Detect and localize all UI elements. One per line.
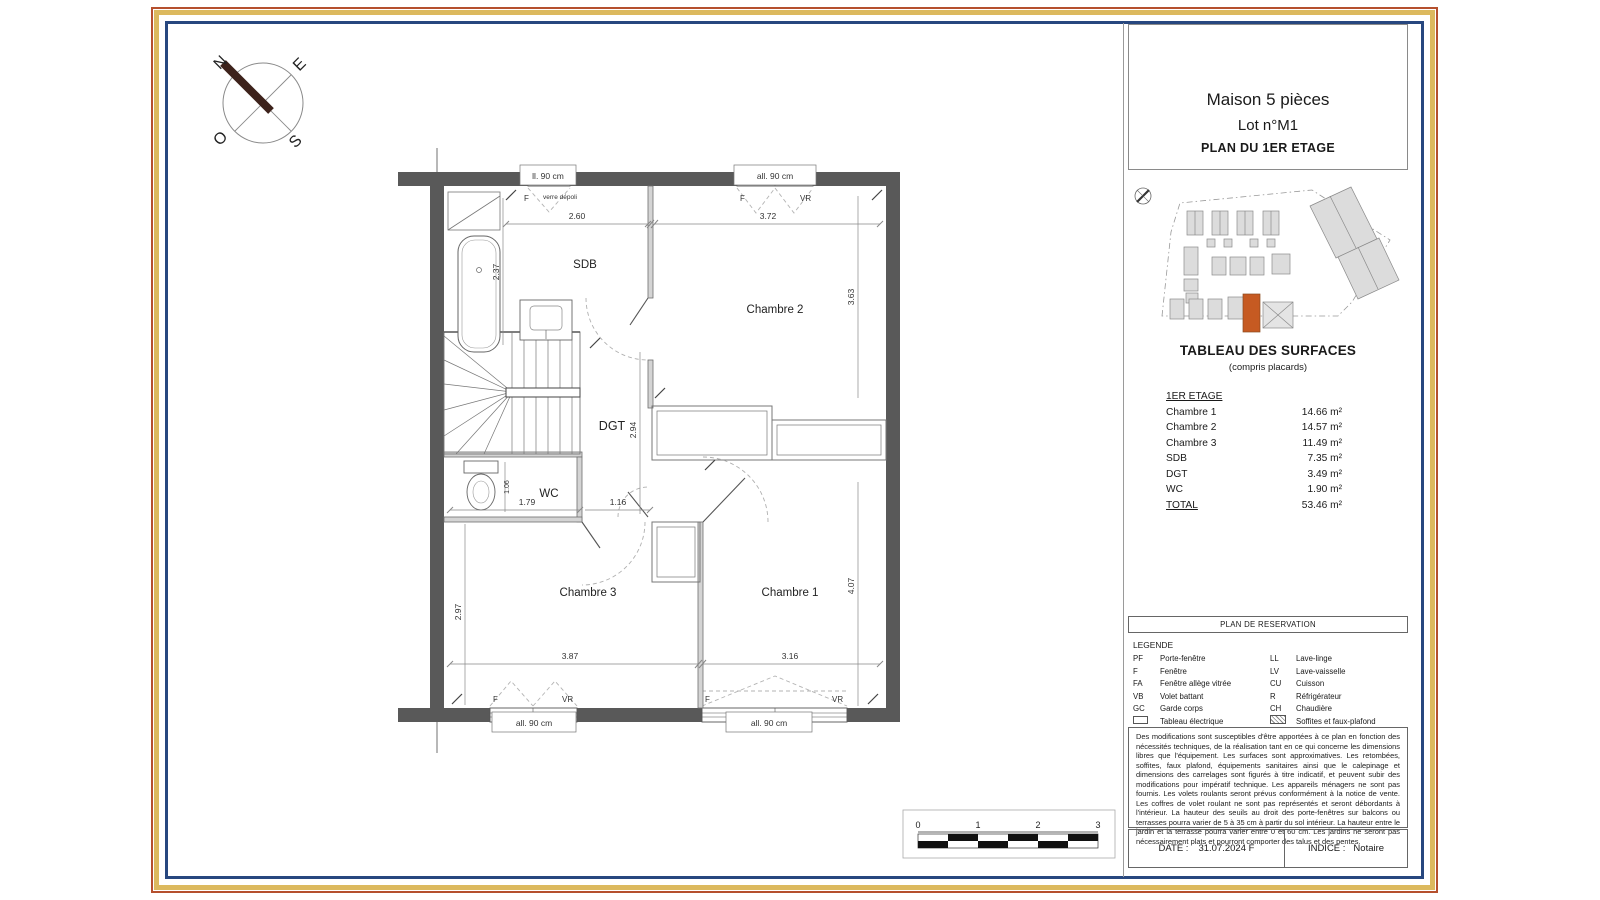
allege-label-top-left: ll. 90 cm (532, 171, 564, 181)
scale-tick-2: 2 (1035, 820, 1040, 830)
soffites-hatch-icon (1270, 715, 1286, 724)
dim-4-07: 4.07 (846, 577, 856, 594)
vr-label-4: VR (832, 695, 843, 704)
surface-row: WC 1.90 m² (1166, 482, 1342, 498)
site-compass-icon (1135, 188, 1151, 204)
toilet-icon (464, 461, 498, 510)
dim-1-16: 1.16 (610, 497, 627, 507)
lot-number: Lot n°M1 (1238, 117, 1298, 134)
staircase (444, 332, 580, 454)
legend-row: VB Volet battant R Réfrigérateur (1133, 691, 1405, 704)
compass-west-label: O (210, 128, 231, 149)
sink-icon (520, 300, 572, 340)
dim-3-72: 3.72 (760, 211, 777, 221)
compass-rose: N E S O (210, 53, 309, 152)
room-label-sdb: SDB (573, 259, 597, 271)
legend-title: LEGENDE (1133, 640, 1405, 650)
surface-row: Chambre 1 14.66 m² (1166, 405, 1342, 421)
dim-2-97: 2.97 (453, 603, 463, 620)
highlighted-lot (1243, 294, 1260, 332)
surface-row: Chambre 2 14.57 m² (1166, 420, 1342, 436)
tableau-electrique-icon (1133, 716, 1148, 724)
scale-bar: 0 1 2 3 (903, 810, 1115, 858)
closet-under-window-icon (448, 192, 500, 230)
vr-label-2: VR (800, 194, 811, 203)
surface-table-subtitle: (compris placards) (1128, 362, 1408, 373)
footer: DATE : 31.07.2024 F INDICE : Notaire (1128, 829, 1408, 868)
compass-east-label: E (290, 55, 310, 75)
indice-value: Notaire (1353, 843, 1384, 854)
room-label-chambre1: Chambre 1 (762, 587, 819, 599)
floor-plan: 2.60 3.72 2.37 3.63 2.94 4.07 2.97 3.87 … (398, 148, 900, 753)
surface-table-title: TABLEAU DES SURFACES (1128, 343, 1408, 358)
allege-label-top-right: all. 90 cm (757, 171, 793, 181)
dim-3-63: 3.63 (846, 288, 856, 305)
surface-row: SDB 7.35 m² (1166, 451, 1342, 467)
legend: LEGENDE PF Porte-fenêtre LL Lave-linge F… (1133, 640, 1405, 729)
indice-cell: INDICE : Notaire (1285, 830, 1407, 867)
legend-row: FA Fenêtre allège vitrée CU Cuisson (1133, 678, 1405, 691)
surface-row: DGT 3.49 m² (1166, 467, 1342, 483)
title-block: Maison 5 pièces Lot n°M1 PLAN DU 1ER ETA… (1128, 24, 1408, 170)
plan-title: PLAN DU 1ER ETAGE (1201, 141, 1335, 155)
dim-3-87: 3.87 (562, 651, 579, 661)
f-label-4: F (705, 695, 710, 704)
dimension-lines (447, 196, 883, 706)
disclaimer-text: Des modifications sont susceptibles d'êt… (1128, 727, 1408, 828)
dim-2-37: 2.37 (491, 263, 501, 280)
vr-label-3: VR (562, 695, 573, 704)
verre-depoli-note: verre dépoli (543, 194, 577, 201)
legend-row: PF Porte-fenêtre LL Lave-linge (1133, 653, 1405, 666)
compass-south-label: S (286, 132, 306, 152)
stair-handrail (506, 388, 580, 397)
scale-tick-1: 1 (975, 820, 980, 830)
legend-row: GC Garde corps CH Chaudière (1133, 703, 1405, 716)
f-label-1: F (524, 194, 529, 203)
surface-row-total: TOTAL 53.46 m² (1166, 498, 1342, 514)
jamb-marks (452, 190, 882, 704)
f-label-3: F (493, 695, 498, 704)
dim-2-94: 2.94 (628, 421, 638, 438)
indice-label: INDICE : (1308, 843, 1345, 854)
allege-label-bottom-right: all. 90 cm (751, 718, 787, 728)
scale-tick-3: 3 (1095, 820, 1100, 830)
date-label: DATE : (1159, 843, 1189, 854)
plan-sheet: N E S O (0, 0, 1600, 900)
f-label-2: F (740, 194, 745, 203)
room-label-chambre2: Chambre 2 (747, 304, 804, 316)
dim-1-06: 1.06 (504, 480, 511, 494)
surface-row: Chambre 3 11.49 m² (1166, 436, 1342, 452)
door-arcs (582, 298, 768, 585)
room-labels: SDB Chambre 2 DGT WC Chambre 3 Chambre 1 (539, 259, 818, 599)
surface-table: 1ER ETAGE Chambre 1 14.66 m² Chambre 2 1… (1166, 389, 1342, 513)
window-swing-lines (490, 188, 847, 706)
compass-needle-icon (223, 63, 271, 111)
scale-tick-0: 0 (915, 820, 920, 830)
site-buildings (1170, 187, 1399, 319)
date-value: 31.07.2024 F (1198, 843, 1254, 854)
site-hip-roof-house (1263, 302, 1293, 328)
room-label-dgt: DGT (599, 419, 626, 433)
windows (490, 172, 847, 722)
date-cell: DATE : 31.07.2024 F (1129, 830, 1285, 867)
dim-2-60: 2.60 (569, 211, 586, 221)
reservation-header: PLAN DE RESERVATION (1128, 616, 1408, 633)
legend-row: F Fenêtre LV Lave-vaisselle (1133, 666, 1405, 679)
bathtub-icon (458, 236, 500, 352)
window-labels: ll. 90 cm all. 90 cm all. 90 cm all. 90 … (492, 165, 843, 732)
room-label-wc: WC (539, 488, 558, 500)
site-plan-thumbnail (1135, 187, 1399, 332)
allege-label-bottom-left: all. 90 cm (516, 718, 552, 728)
room-label-chambre3: Chambre 3 (560, 587, 617, 599)
surface-section-header: 1ER ETAGE (1166, 389, 1342, 405)
dim-3-16: 3.16 (782, 651, 799, 661)
dim-1-79: 1.79 (519, 497, 536, 507)
project-title: Maison 5 pièces (1207, 90, 1330, 110)
panel-divider (1123, 23, 1124, 877)
closets (652, 406, 886, 582)
